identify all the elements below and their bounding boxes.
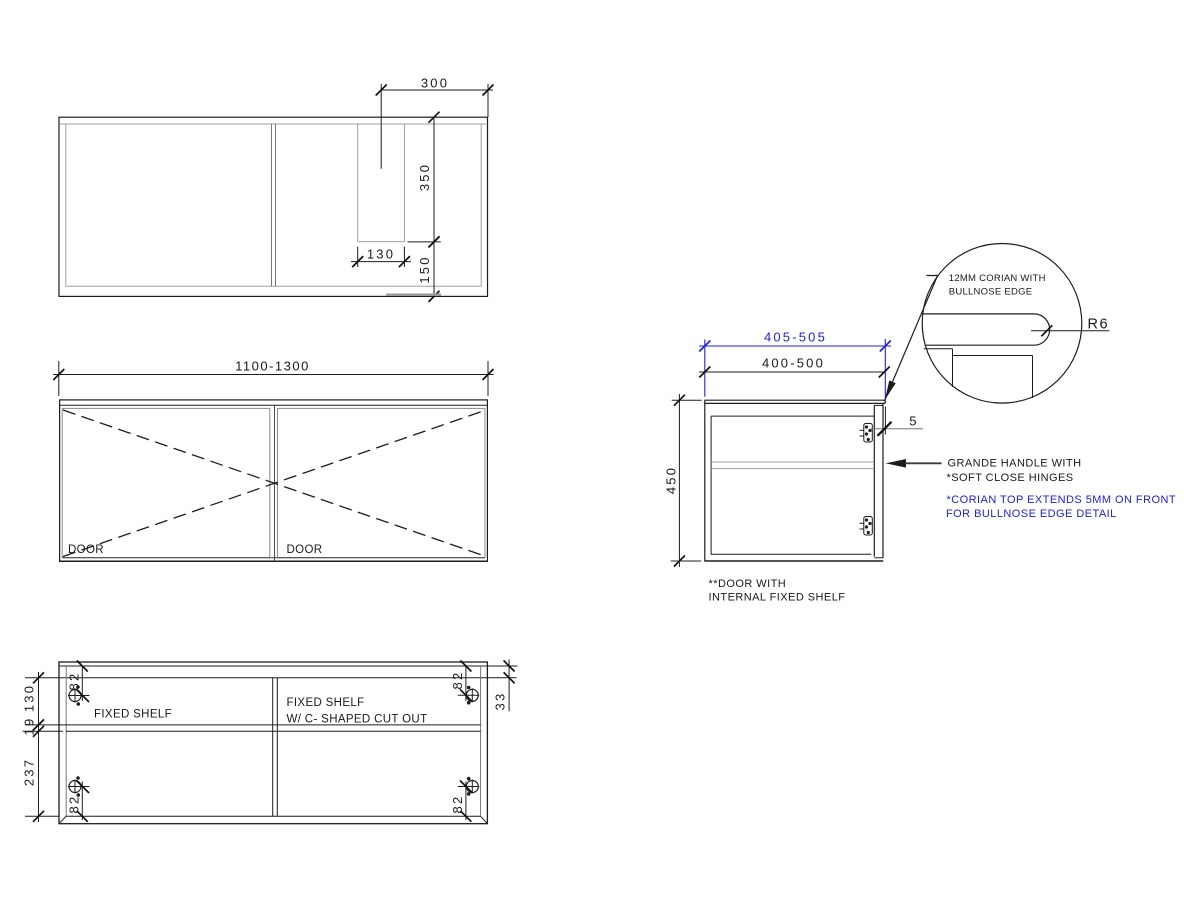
svg-text:FIXED SHELF: FIXED SHELF xyxy=(94,709,172,721)
svg-text:BULLNOSE EDGE: BULLNOSE EDGE xyxy=(949,287,1033,298)
svg-text:450: 450 xyxy=(664,466,679,494)
svg-text:350: 350 xyxy=(417,163,432,191)
svg-text:130: 130 xyxy=(22,684,37,712)
svg-text:150: 150 xyxy=(417,255,432,283)
svg-text:5: 5 xyxy=(909,414,918,429)
svg-text:82: 82 xyxy=(66,672,81,691)
svg-text:237: 237 xyxy=(22,758,37,786)
svg-text:19: 19 xyxy=(22,717,37,736)
svg-text:12MM CORIAN WITH: 12MM CORIAN WITH xyxy=(949,273,1046,284)
svg-text:INTERNAL FIXED SHELF: INTERNAL FIXED SHELF xyxy=(709,592,846,604)
svg-text:*CORIAN TOP EXTENDS 5MM ON FRO: *CORIAN TOP EXTENDS 5MM ON FRONT xyxy=(947,494,1177,506)
svg-text:33: 33 xyxy=(493,692,508,711)
svg-text:1100-1300: 1100-1300 xyxy=(235,359,310,374)
svg-text:*SOFT CLOSE HINGES: *SOFT CLOSE HINGES xyxy=(947,472,1074,484)
svg-text:400-500: 400-500 xyxy=(762,356,825,371)
svg-text:82: 82 xyxy=(450,671,465,690)
svg-text:**DOOR WITH: **DOOR WITH xyxy=(709,578,787,590)
svg-text:DOOR: DOOR xyxy=(68,544,104,556)
svg-text:405-505: 405-505 xyxy=(764,329,827,344)
svg-text:130: 130 xyxy=(367,247,395,262)
svg-text:R6: R6 xyxy=(1088,317,1110,333)
svg-text:GRANDE HANDLE WITH: GRANDE HANDLE WITH xyxy=(948,458,1082,470)
svg-text:82: 82 xyxy=(66,795,81,814)
svg-text:82: 82 xyxy=(450,795,465,814)
svg-text:W/ C- SHAPED CUT OUT: W/ C- SHAPED CUT OUT xyxy=(287,714,428,726)
svg-text:DOOR: DOOR xyxy=(287,544,323,556)
svg-text:FIXED SHELF: FIXED SHELF xyxy=(287,697,365,709)
svg-text:300: 300 xyxy=(421,76,449,91)
svg-text:FOR BULLNOSE EDGE DETAIL: FOR BULLNOSE EDGE DETAIL xyxy=(946,508,1117,520)
